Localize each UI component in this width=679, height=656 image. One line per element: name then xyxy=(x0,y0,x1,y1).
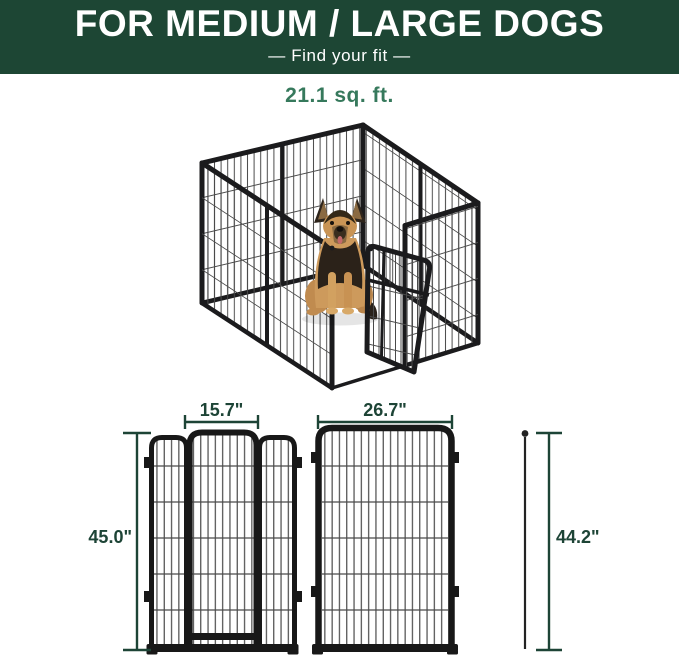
panel-width-label: 26.7" xyxy=(363,400,407,420)
panel-diagrams: 15.7" 45.0" xyxy=(0,395,679,656)
playpen-illustration xyxy=(0,100,679,400)
door-width-label: 15.7" xyxy=(200,400,244,420)
door-panel-height-label: 45.0" xyxy=(88,527,132,547)
header-banner: FOR MEDIUM / LARGE DOGS — Find your fit … xyxy=(0,0,679,74)
banner-subtitle: — Find your fit — xyxy=(0,46,679,66)
doorway-threshold xyxy=(332,366,405,389)
door-bottom-bar xyxy=(193,633,254,640)
regular-panel-diagram xyxy=(311,428,459,655)
panel-height-label: 44.2" xyxy=(556,527,600,547)
product-infographic: FOR MEDIUM / LARGE DOGS — Find your fit … xyxy=(0,0,679,656)
banner-title: FOR MEDIUM / LARGE DOGS xyxy=(0,0,679,42)
door-panel-diagram xyxy=(144,433,302,655)
panel-side-profile xyxy=(522,430,529,649)
